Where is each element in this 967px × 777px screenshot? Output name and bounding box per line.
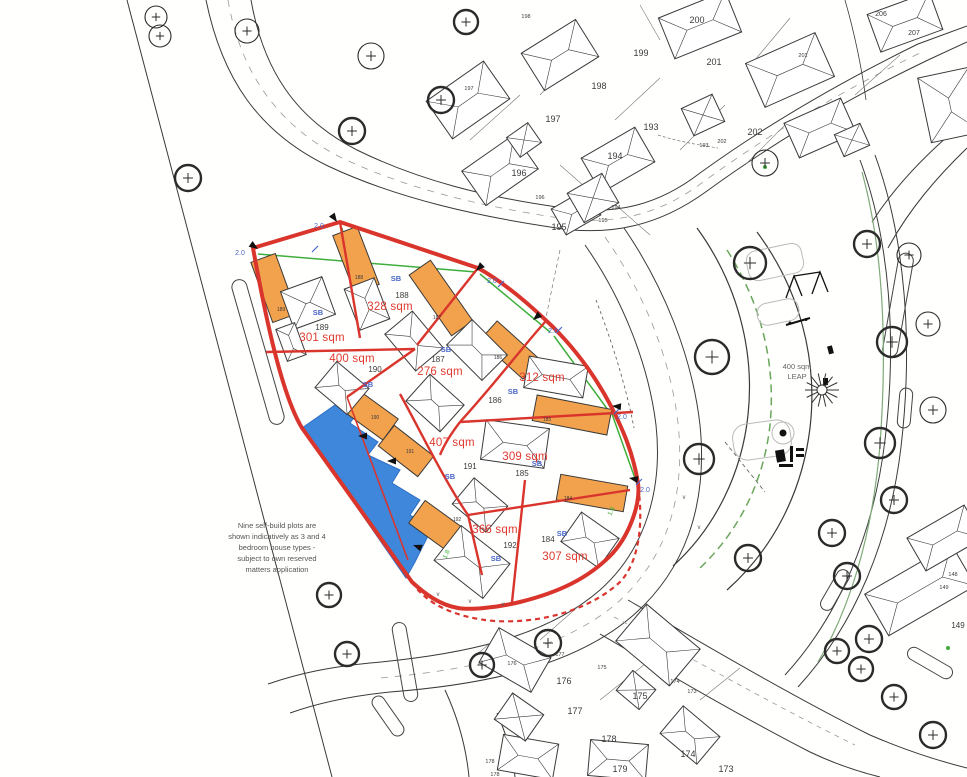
self-build-marker: SB — [532, 459, 543, 468]
v-mark: v — [698, 525, 701, 531]
plot-number: 176 — [556, 676, 571, 686]
plot-number: 178 — [601, 734, 616, 744]
plot-number: 177 — [567, 706, 582, 716]
area-label: 312 sqm — [519, 372, 565, 384]
plot-number: 173 — [718, 764, 733, 774]
garage-number: 192 — [453, 517, 462, 523]
tree-icon — [916, 312, 940, 336]
v-mark: v — [469, 599, 472, 605]
tree-icon — [695, 340, 729, 374]
self-build-marker: SB — [491, 554, 502, 563]
garage-outline — [494, 693, 543, 741]
plot-number: 189 — [315, 323, 329, 332]
tree-icon — [920, 397, 946, 423]
bench-icon — [827, 345, 834, 354]
boundary-arrow-icon — [387, 458, 396, 465]
plot-number: 175 — [632, 691, 647, 701]
garage-number: 186 — [494, 355, 503, 361]
tree-icon — [684, 444, 714, 474]
self-build-marker: SB — [557, 529, 568, 538]
feature-tree-icon — [805, 373, 839, 406]
self-build-marker: SB — [313, 308, 324, 317]
note-line: subject to own reserved — [237, 554, 316, 563]
plot-number: 178 — [490, 772, 499, 777]
plot-number: 148 — [948, 572, 957, 578]
plot-number: 190 — [368, 365, 382, 374]
area-label: 407 sqm — [429, 437, 475, 449]
plot-number: 174 — [670, 679, 679, 685]
plot-number: 195 — [551, 222, 566, 232]
area-label: 307 sqm — [542, 551, 588, 563]
plot-number: 198 — [521, 14, 530, 20]
tree-icon — [819, 520, 845, 546]
dimension-label: 2.0 — [487, 278, 497, 285]
leap-name-label: LEAP — [787, 372, 806, 381]
area-label: 366 sqm — [472, 524, 518, 536]
v-mark: v — [437, 592, 440, 598]
parking-bay-loop — [369, 693, 406, 738]
area-label: 301 sqm — [299, 332, 345, 344]
house-outline — [658, 0, 741, 59]
plot-number: 195 — [598, 218, 607, 224]
garage-number: 191 — [406, 449, 415, 455]
tree-icon — [920, 722, 946, 748]
site-plan-drawing: 301 sqm189SB328 sqm188SB400 sqm190SB276 … — [0, 0, 967, 777]
leap-path — [673, 228, 749, 566]
garage-number: 184 — [564, 496, 573, 502]
plot-number: 188 — [395, 291, 409, 300]
tree-icon — [825, 639, 849, 663]
self-build-marker: SB — [391, 274, 402, 283]
house-outline — [497, 734, 558, 777]
plot-number: 198 — [591, 81, 606, 91]
plot-number: 193 — [643, 122, 658, 132]
plot-number: 185 — [515, 469, 529, 478]
site-western-boundary-line — [127, 0, 332, 777]
area-label: 400 sqm — [329, 353, 375, 365]
plot-number: 191 — [463, 462, 477, 471]
plot-number: 202 — [717, 139, 726, 145]
tree-icon — [235, 19, 259, 43]
plot-number: 173 — [687, 689, 696, 695]
tree-icon — [339, 118, 365, 144]
springer-icon — [780, 430, 787, 437]
garage-outline — [681, 94, 724, 136]
plot-number: 206 — [875, 11, 887, 18]
tree-icon — [145, 6, 167, 28]
self-build-house — [280, 277, 335, 330]
parking-bay-loop — [905, 645, 955, 681]
plot-number: 193 — [699, 143, 708, 149]
plot-number: 178 — [485, 759, 494, 765]
tree-icon — [856, 626, 882, 652]
tree-icon — [335, 642, 359, 666]
dimension-label: 2.0 — [235, 250, 245, 257]
v-mark: v — [683, 495, 686, 501]
tree-icon — [175, 165, 201, 191]
dimension-label: 2.0 — [617, 414, 627, 421]
note-line: matters application — [246, 565, 309, 574]
garage-number: 190 — [371, 415, 380, 421]
plot-number: 149 — [939, 585, 948, 591]
garage-number: 188 — [355, 275, 364, 281]
area-label: 328 sqm — [367, 301, 413, 313]
plot-number: 177 — [555, 652, 564, 658]
tree-icon — [849, 657, 873, 681]
plot-number: 196 — [535, 195, 544, 201]
site-plan-page: 301 sqm189SB328 sqm188SB400 sqm190SB276 … — [0, 0, 967, 777]
self-build-marker: SB — [363, 380, 374, 389]
tree-icon — [358, 43, 384, 69]
tree-icon — [149, 25, 171, 47]
house-outline — [616, 604, 700, 686]
note-line: Nine self-build plots are — [238, 521, 316, 530]
plot-number: 184 — [541, 535, 555, 544]
self-build-marker: SB — [441, 345, 452, 354]
self-build-marker: SB — [508, 387, 519, 396]
tree-icon — [865, 428, 895, 458]
dimension-label: 2.0 — [548, 328, 558, 335]
dimension-label: 2.0 — [640, 487, 650, 494]
plot-number: 186 — [488, 396, 502, 405]
garage-number: 185 — [543, 417, 552, 423]
garage-number: 187 — [433, 315, 442, 321]
tree-icon — [882, 685, 906, 709]
house-outline — [479, 628, 551, 693]
plot-number: 174 — [680, 749, 695, 759]
plot-number: 187 — [431, 355, 445, 364]
plot-number: 199 — [633, 48, 648, 58]
plot-number: 201 — [706, 57, 721, 67]
tree-icon — [734, 247, 766, 279]
plot-number: 197 — [545, 114, 560, 124]
garage-number: 189 — [277, 307, 286, 313]
plot-number: 194 — [611, 205, 620, 211]
leap-green-boundary — [700, 250, 771, 568]
plot-number: 176 — [507, 661, 516, 667]
house-outline — [918, 67, 967, 142]
note-line: bedroom house types - — [239, 543, 316, 552]
tree-icon — [752, 150, 778, 176]
plot-number: 179 — [612, 764, 627, 774]
plot-number: 192 — [503, 541, 517, 550]
tree-icon — [317, 583, 341, 607]
plot-number: 196 — [511, 168, 526, 178]
leap-area-label: 400 sqm — [783, 362, 812, 371]
plot-number: 201 — [798, 53, 807, 59]
plot-number: 197 — [464, 86, 473, 92]
house-outline — [521, 19, 599, 90]
plot-number: 175 — [597, 665, 606, 671]
house-outline — [746, 33, 835, 108]
note-line: shown indicatively as 3 and 4 — [228, 532, 326, 541]
plot-number: 194 — [607, 151, 622, 161]
plot-number: 200 — [689, 15, 704, 25]
garage-outline — [616, 670, 656, 709]
v-mark: v — [502, 602, 505, 608]
plot-number: 202 — [747, 127, 762, 137]
tree-icon — [877, 327, 907, 357]
plot-number: 149 — [951, 621, 965, 630]
house-outline — [867, 0, 943, 52]
dimension-label: 2.0 — [314, 223, 324, 230]
plot-number: 207 — [908, 30, 920, 37]
tree-icon — [454, 10, 478, 34]
self-build-marker: SB — [445, 472, 456, 481]
area-label: 276 sqm — [417, 366, 463, 378]
